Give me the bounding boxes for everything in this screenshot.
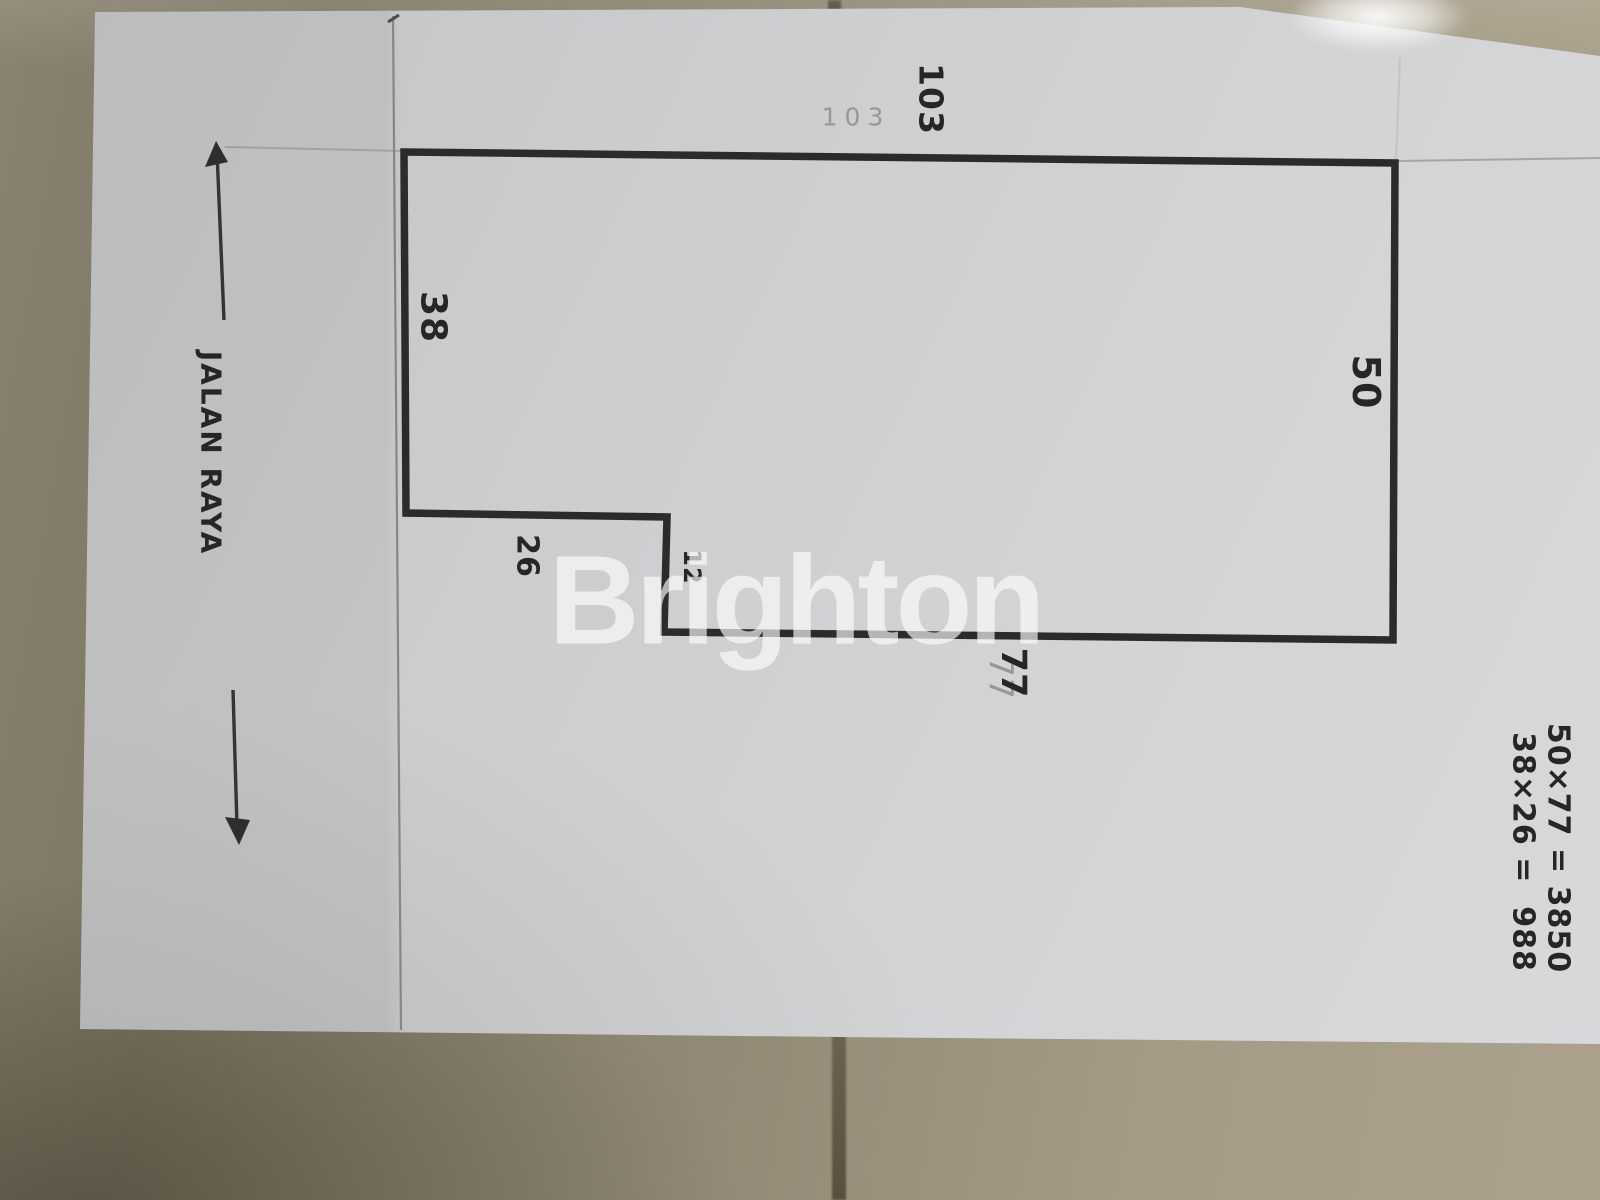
area-calculation-line1: 50×77 = 3850 [1541,723,1576,973]
paper-crease [1396,58,1400,162]
road-arrow-up-icon [205,141,228,320]
tile-grout-line-bottom [832,1034,846,1200]
pencil-guide-left [225,147,403,151]
dimension-label-right: 50 [1344,355,1388,410]
dimension-label-top-pencil: 103 [822,103,891,132]
dimension-label-left: 38 [413,291,454,343]
camera-flash-highlight [1285,0,1470,52]
road-name-label: JALAN RAYA [195,351,228,556]
road-arrow-down-icon [225,690,250,845]
dimension-label-notch-width: 26 [510,534,545,578]
area-calculation-line2: 38×26 = 988 [1506,732,1541,972]
paper-sheet: 103 103 38 50 26 12 77 77 JALAN RAYA 50×… [0,0,1600,1200]
brighton-watermark: Brighton [549,528,1042,673]
pencil-guide-right [1396,158,1600,161]
fold-line [393,16,401,1030]
dimension-label-top: 103 [912,63,951,135]
photo-canvas: 103 103 38 50 26 12 77 77 JALAN RAYA 50×… [0,0,1600,1200]
